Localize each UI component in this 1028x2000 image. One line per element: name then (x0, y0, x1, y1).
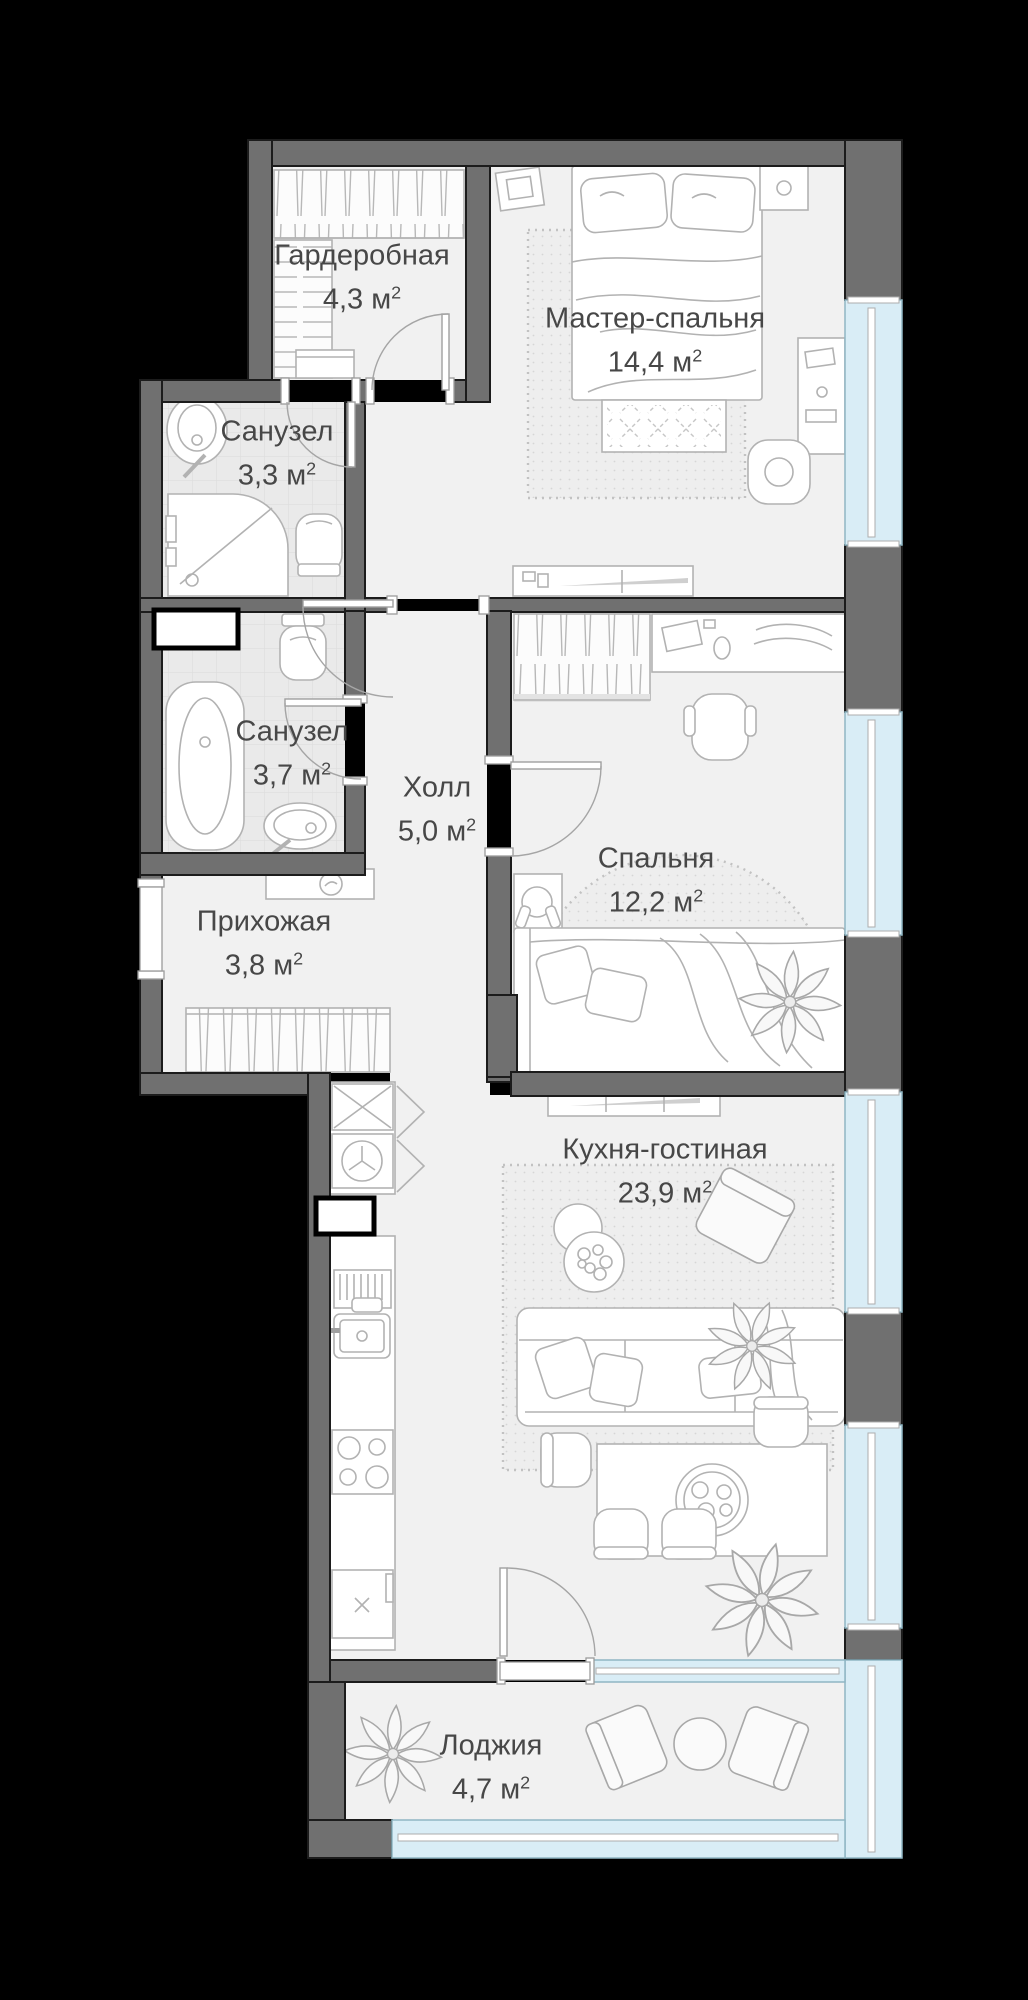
bedside-rug-icon (602, 400, 726, 452)
desk-chair-icon (748, 440, 810, 504)
bench-icon (296, 350, 354, 378)
base-cabinet-icon (332, 1570, 393, 1638)
office-chair-icon (684, 694, 756, 760)
door-leaf (511, 762, 601, 769)
shaft-icon (316, 1198, 374, 1234)
washing-machine-icon (332, 1134, 393, 1188)
dining-chair-icon (541, 1433, 591, 1487)
shaft-icon (154, 610, 238, 648)
toilet-icon (296, 514, 342, 576)
tv-console-icon (513, 566, 693, 596)
dining-chair-icon (594, 1509, 648, 1559)
loggia-table-icon (674, 1718, 726, 1770)
nightstand-icon (760, 166, 808, 210)
dining-chair-icon (662, 1509, 716, 1559)
floorplan-canvas: Гардеробная 4,3 м2 Мастер-спальня 14,4 м… (0, 0, 1028, 2000)
floorplan-drawing (0, 0, 1028, 2000)
bathtub-icon (166, 682, 244, 850)
wardrobe-rail-icon (514, 614, 650, 702)
kitchen-sink-icon (328, 1314, 390, 1358)
desk-icon (798, 338, 845, 454)
desk-icon (652, 614, 845, 672)
toilet-icon (280, 614, 326, 680)
shower-icon (166, 494, 288, 596)
door-leaf (442, 314, 449, 390)
door-leaf (285, 699, 361, 706)
dish-rack-icon (334, 1270, 391, 1312)
dining-chair-icon (754, 1397, 808, 1447)
fridge-icon (332, 1084, 393, 1130)
stove-icon (332, 1430, 393, 1494)
door-leaf (348, 402, 355, 467)
nightstand-headphones-icon (514, 874, 562, 932)
balcony-door-threshold (500, 1662, 590, 1680)
door-leaf (303, 600, 393, 607)
nightstand-icon (495, 167, 544, 211)
door-leaf (500, 1568, 507, 1656)
closet-rail-icon (186, 1008, 390, 1072)
wardrobe-rail-icon (274, 170, 464, 238)
entrance-door-threshold (140, 887, 162, 971)
master-bed-icon (572, 166, 762, 400)
coffee-table-flowers-icon (564, 1232, 624, 1292)
